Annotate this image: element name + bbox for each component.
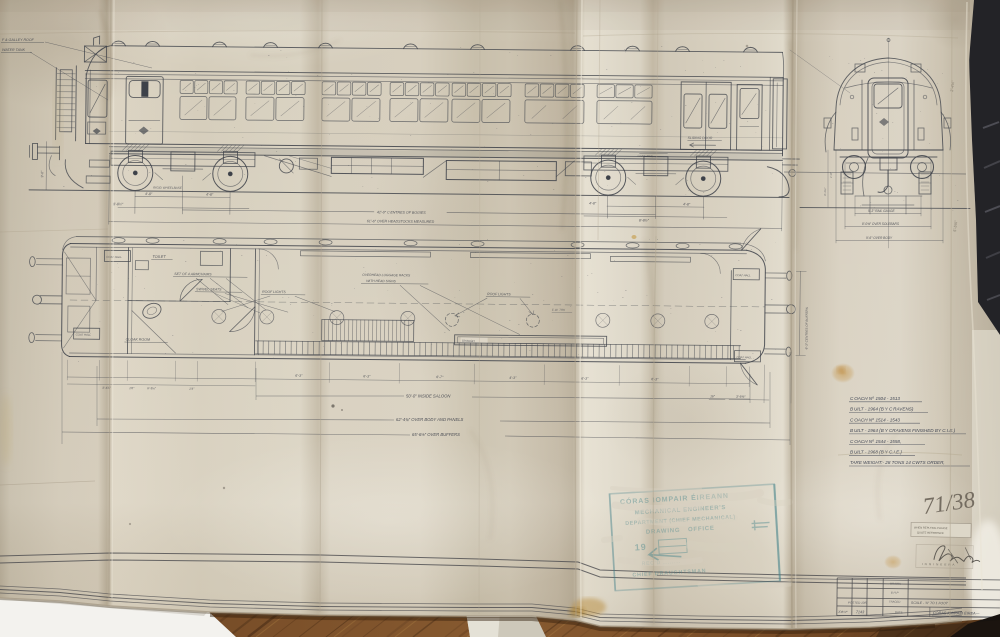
svg-text:50′-0″ INSIDE SALOON: 50′-0″ INSIDE SALOON bbox=[406, 394, 451, 399]
svg-text:COAT HALL: COAT HALL bbox=[106, 255, 122, 259]
svg-text:B UILT - 1964 (B Y C RAVEN: B UILT - 1964 (B Y C RAVENS) bbox=[850, 407, 914, 412]
svg-text:F & GALLEY ROOF: F & GALLEY ROOF bbox=[2, 38, 35, 42]
svg-text:SCALE - ¾″ TO 1 FOOT: SCALE - ¾″ TO 1 FOOT bbox=[911, 601, 949, 605]
svg-text:B UILT - 1964 (B Y CRAVENS F: B UILT - 1964 (B Y CRAVENS FINISHED BY C… bbox=[850, 428, 956, 433]
svg-text:4′-3″: 4′-3″ bbox=[509, 376, 517, 380]
svg-text:§ H P: § H P bbox=[890, 591, 899, 595]
svg-text:WATER TANK: WATER TANK bbox=[2, 48, 26, 52]
svg-text:4′-8″: 4′-8″ bbox=[145, 192, 153, 196]
svg-text:8′-8½″: 8′-8½″ bbox=[639, 218, 650, 222]
svg-text:WHEN REPLYING PLEASE: WHEN REPLYING PLEASE bbox=[914, 525, 948, 530]
svg-text:4′-8″: 4′-8″ bbox=[683, 202, 691, 206]
svg-text:1′-0″: 1′-0″ bbox=[829, 171, 833, 178]
svg-text:ROOF LIGHTS: ROOF LIGHTS bbox=[487, 292, 511, 296]
svg-text:COAT HALL: COAT HALL bbox=[735, 273, 751, 277]
svg-text:RIGID WHEELBASE: RIGID WHEELBASE bbox=[153, 186, 183, 190]
svg-text:62′-4¾″ OVER BODY AND PANELS: 62′-4¾″ OVER BODY AND PANELS bbox=[396, 417, 464, 422]
svg-text:6′-5⅛″: 6′-5⅛″ bbox=[147, 386, 157, 390]
svg-text:CLOAK ROOM: CLOAK ROOM bbox=[126, 338, 150, 342]
svg-text:4′-1¾″: 4′-1¾″ bbox=[823, 187, 827, 196]
svg-text:TARE WEIGHT:- 28 TONS 14 CWT: TARE WEIGHT:- 28 TONS 14 CWTS ORDER, bbox=[850, 460, 945, 465]
svg-text:6′-3″: 6′-3″ bbox=[581, 377, 589, 381]
svg-text:9′-6″: 9′-6″ bbox=[40, 170, 44, 178]
svg-text:4′-8″: 4′-8″ bbox=[206, 193, 214, 197]
svg-text:19: 19 bbox=[634, 542, 647, 553]
svg-text:4′-8″: 4′-8″ bbox=[589, 201, 597, 205]
svg-text:6′-3″: 6′-3″ bbox=[363, 374, 371, 378]
svg-text:61′-6″ OVER HEADSTOCKS MEASURE: 61′-6″ OVER HEADSTOCKS MEASURED bbox=[367, 219, 435, 224]
svg-text:DRAWN: DRAWN bbox=[890, 582, 901, 586]
svg-text:8′-0⅜″ OVER SOLEBARS: 8′-0⅜″ OVER SOLEBARS bbox=[862, 222, 900, 226]
svg-text:DATE: DATE bbox=[895, 610, 903, 614]
svg-text:6′-3″: 6′-3″ bbox=[295, 374, 303, 378]
svg-text:8′-8½″: 8′-8½″ bbox=[113, 202, 124, 206]
svg-text:JOB Nº: JOB Nº bbox=[838, 610, 849, 614]
svg-text:QUOTE REFERENCE: QUOTE REFERENCE bbox=[917, 531, 944, 536]
svg-text:6′-3″: 6′-3″ bbox=[651, 377, 659, 381]
svg-text:C OACH Nº 1514 - 1543: C OACH Nº 1514 - 1543 bbox=[850, 417, 900, 422]
svg-text:WITH HEAD SIGNS: WITH HEAD SIGNS bbox=[366, 279, 397, 283]
svg-text:SWIVEL SEATS: SWIVEL SEATS bbox=[196, 287, 222, 291]
svg-text:9′-6″ OVER BODY: 9′-6″ OVER BODY bbox=[866, 236, 893, 240]
svg-text:CÓRAS IOMPAIR ÉIREA—: CÓRAS IOMPAIR ÉIREA— bbox=[933, 610, 980, 616]
svg-text:SLIDING DOOR: SLIDING DOOR bbox=[688, 136, 713, 140]
svg-text:7143: 7143 bbox=[856, 610, 865, 614]
svg-text:ROOF LIGHTS: ROOF LIGHTS bbox=[262, 290, 286, 294]
svg-text:65′-6⅛″ OVER BUFFERS: 65′-6⅛″ OVER BUFFERS bbox=[412, 432, 460, 437]
svg-text:TROUGH: TROUGH bbox=[462, 339, 476, 343]
svg-text:5′-3″ RAIL GAUGE: 5′-3″ RAIL GAUGE bbox=[868, 209, 896, 213]
svg-text:TOILET: TOILET bbox=[152, 255, 166, 259]
svg-text:COAT HALL: COAT HALL bbox=[76, 333, 92, 337]
svg-text:42′-0″ C ENTRES OF BOGIES: 42′-0″ C ENTRES OF BOGIES bbox=[377, 210, 426, 214]
svg-text:C OACH Nº 1504 - 1513: C OACH Nº 1504 - 1513 bbox=[850, 396, 900, 401]
svg-text:E.W. TRK: E.W. TRK bbox=[552, 308, 566, 312]
svg-text:POSTED 10/9: POSTED 10/9 bbox=[848, 601, 867, 605]
svg-text:OVERHEAD LUGGAGE RACKS: OVERHEAD LUGGAGE RACKS bbox=[362, 273, 411, 277]
svg-text:TRACED: TRACED bbox=[889, 600, 901, 604]
svg-text:6′-7″: 6′-7″ bbox=[436, 375, 444, 379]
svg-text:SET OF 4 ARMCHAIRS: SET OF 4 ARMCHAIRS bbox=[174, 272, 212, 276]
svg-text:C OACH Nº 1544 - 1558,: C OACH Nº 1544 - 1558, bbox=[850, 439, 901, 444]
svg-text:6′-3″ CENTRES OF BUFFERS: 6′-3″ CENTRES OF BUFFERS bbox=[805, 306, 809, 349]
svg-text:3′-6⅛″: 3′-6⅛″ bbox=[736, 395, 746, 399]
